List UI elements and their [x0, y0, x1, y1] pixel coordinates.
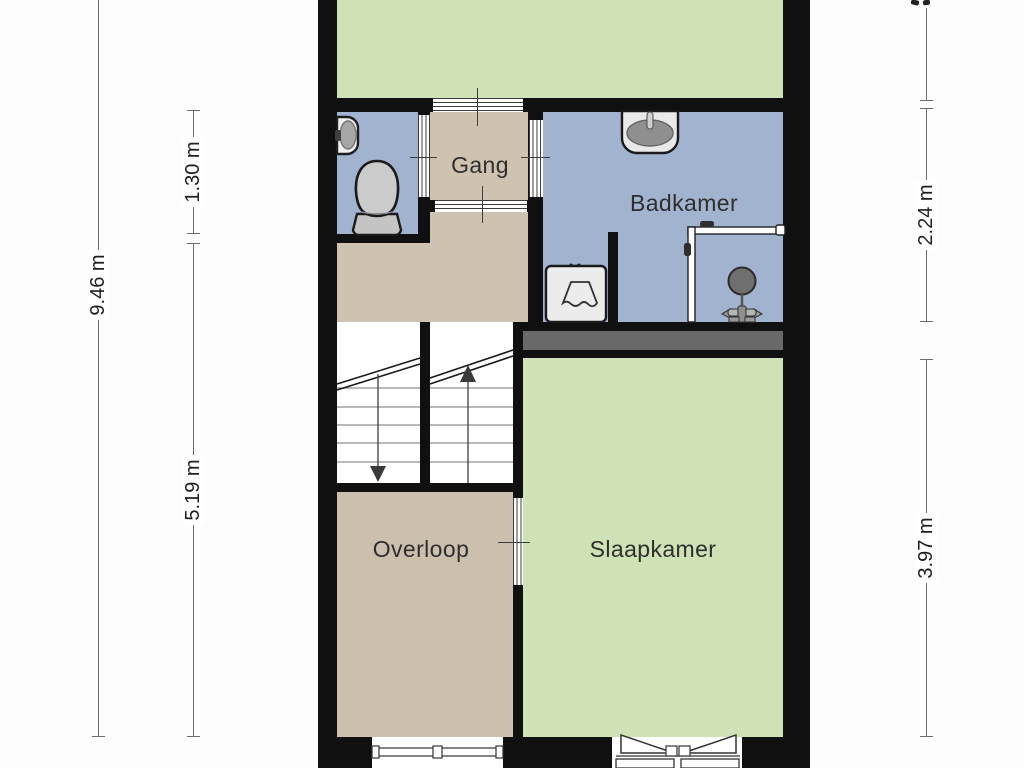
- wall-right-outer: [783, 0, 810, 768]
- wall-left-outer: [318, 0, 337, 768]
- door-gang-top: [433, 98, 523, 112]
- room-overloop: [337, 492, 513, 737]
- floor-plan: Gang Badkamer Overloop Slaapkamer 9.46 m…: [0, 0, 1024, 768]
- room-label-overloop: Overloop: [321, 535, 521, 563]
- room-label-slaapkamer: Slaapkamer: [553, 535, 753, 563]
- stairwell-right: [430, 322, 513, 483]
- dimension-right-slaapkamer-label: 3.97 m: [915, 503, 937, 593]
- wall-slaapkamer-top: [513, 350, 783, 358]
- wall-stair-middle: [420, 322, 430, 492]
- room-label-badkamer: Badkamer: [584, 189, 784, 217]
- door-gang-bottom-mark: [482, 186, 483, 223]
- wall-wc-bottom: [337, 234, 430, 243]
- closet-strip: [521, 331, 783, 350]
- room-label-gang: Gang: [405, 151, 555, 179]
- hall-mid: [430, 212, 528, 322]
- hall-left: [337, 243, 430, 322]
- room-top-green: [337, 0, 783, 98]
- dimension-left-total-label: 9.46 m: [87, 240, 109, 330]
- dimension-left-lower-label: 5.19 m: [182, 445, 204, 535]
- wall-badkamer-stub: [608, 232, 618, 322]
- room-badkamer: [543, 112, 783, 322]
- dimension-right-badkamer-label: 2.24 m: [915, 170, 937, 260]
- dimension-left-gang-label: 1.30 m: [182, 127, 204, 217]
- wall-bottom-outer: [318, 737, 810, 768]
- wall-top-horizontal: [337, 98, 783, 112]
- wall-badkamer-bottom: [513, 322, 783, 331]
- stairwell-left: [337, 322, 420, 483]
- door-gang-top-mark: [477, 88, 478, 126]
- wall-stair-bottom: [337, 483, 513, 492]
- door-gang-bottom: [435, 200, 527, 212]
